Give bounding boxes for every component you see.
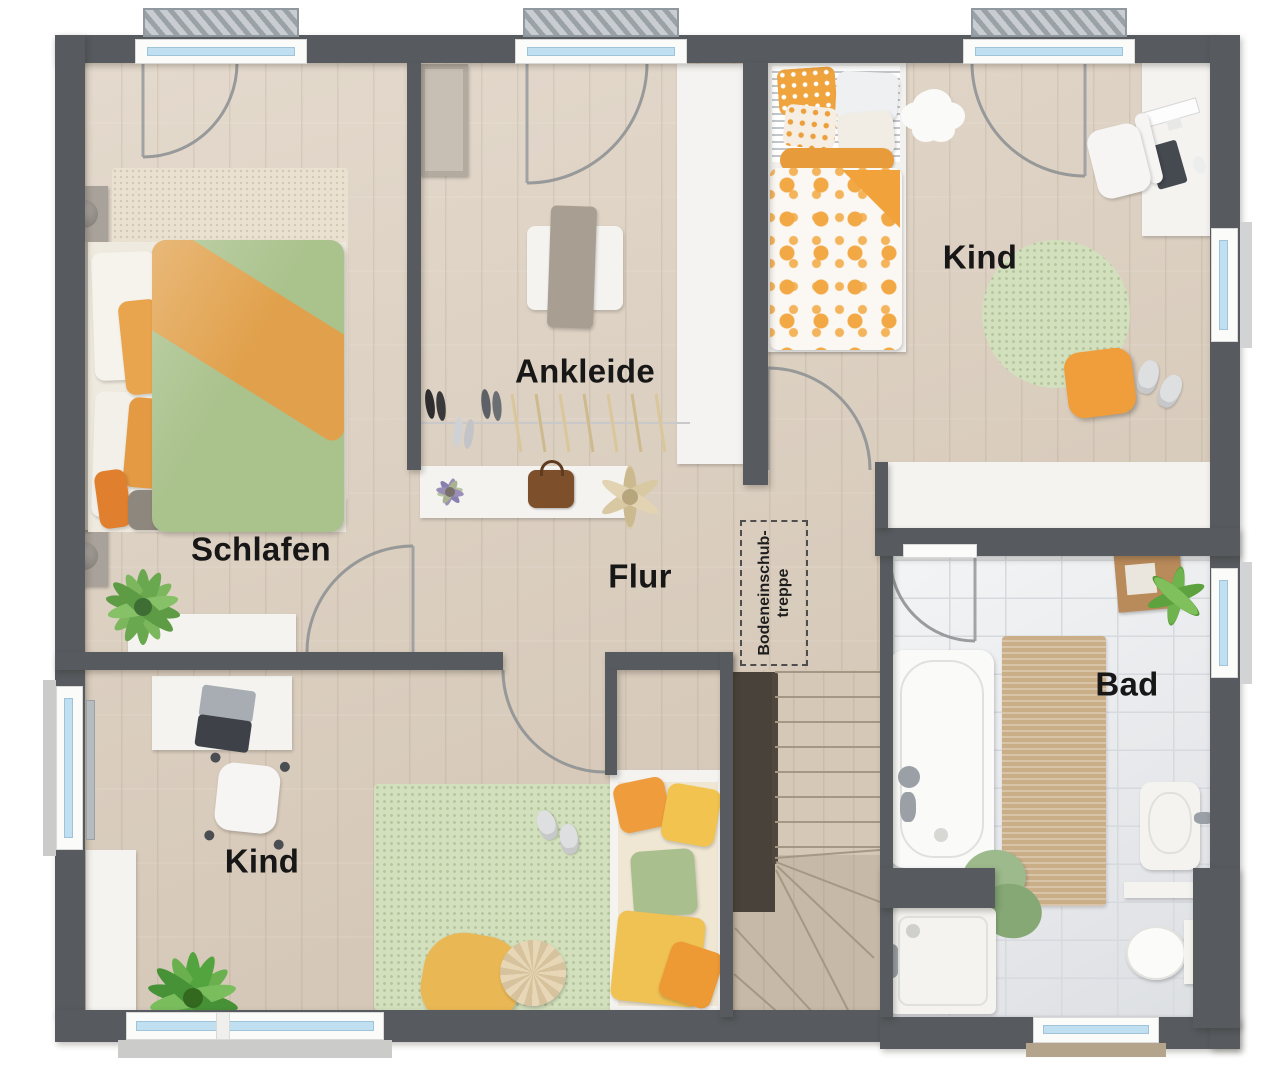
wall-stair-right bbox=[880, 556, 893, 1017]
radiator-top-3 bbox=[971, 8, 1127, 37]
window-right-1-glass bbox=[1219, 240, 1228, 330]
wall-stair-left bbox=[720, 652, 733, 1017]
window-bottom-mullion bbox=[216, 1012, 230, 1040]
window-bottom-glass bbox=[136, 1021, 374, 1031]
window-bad-glass bbox=[1043, 1025, 1149, 1034]
wall-dresser-edge bbox=[875, 462, 888, 528]
window-top-1-glass bbox=[147, 47, 295, 56]
wall-bed-nook-stub bbox=[605, 670, 617, 775]
pampas-plant-icon bbox=[599, 465, 661, 529]
wall-left bbox=[55, 35, 85, 1017]
bath-plant-icon bbox=[1145, 565, 1206, 627]
wall-pilaster-bath bbox=[1193, 868, 1240, 1028]
window-top-3-glass bbox=[975, 47, 1123, 56]
room-label-schlafen: Schlafen bbox=[191, 533, 331, 566]
room-label-ankleide: Ankleide bbox=[515, 355, 655, 388]
radiator-top-1 bbox=[143, 8, 299, 37]
window-right-2-sill bbox=[1240, 562, 1252, 684]
room-label-bad: Bad bbox=[1095, 668, 1158, 701]
window-top-2-glass bbox=[527, 47, 675, 56]
room-label-kind-top: Kind bbox=[943, 241, 1018, 274]
closet-rail-shoes bbox=[420, 389, 690, 452]
bath-door-leaf bbox=[903, 544, 977, 558]
room-label-flur: Flur bbox=[608, 560, 672, 593]
window-bad-sill bbox=[1026, 1043, 1166, 1057]
radiator-top-2 bbox=[523, 8, 679, 37]
room-label-kind-bottom: Kind bbox=[225, 845, 300, 878]
window-bottom-sill bbox=[118, 1040, 392, 1058]
wall-schlafen-ankleide bbox=[407, 63, 421, 470]
attic-hatch-label-line1: Bodeneinschub- bbox=[755, 513, 774, 673]
wall-flur-south bbox=[605, 652, 733, 670]
radiator-left bbox=[86, 700, 95, 840]
wall-ankleide-kind bbox=[743, 63, 768, 485]
window-left-glass bbox=[64, 698, 73, 838]
floor-plan: Bodeneinschub- treppe Schlafen Ankleide … bbox=[0, 0, 1280, 1077]
window-right-2-glass bbox=[1219, 580, 1228, 666]
fern-plant-icon bbox=[104, 569, 182, 645]
flower-sprig-icon bbox=[436, 477, 465, 506]
window-right-1-sill bbox=[1240, 222, 1252, 348]
attic-hatch-label-line2: treppe bbox=[774, 513, 793, 673]
window-left-sill bbox=[43, 680, 56, 856]
wall-schlafen-south bbox=[55, 652, 503, 670]
wall-tub-shower-divider bbox=[880, 868, 995, 908]
attic-hatch-label: Bodeneinschub- treppe bbox=[755, 513, 793, 673]
